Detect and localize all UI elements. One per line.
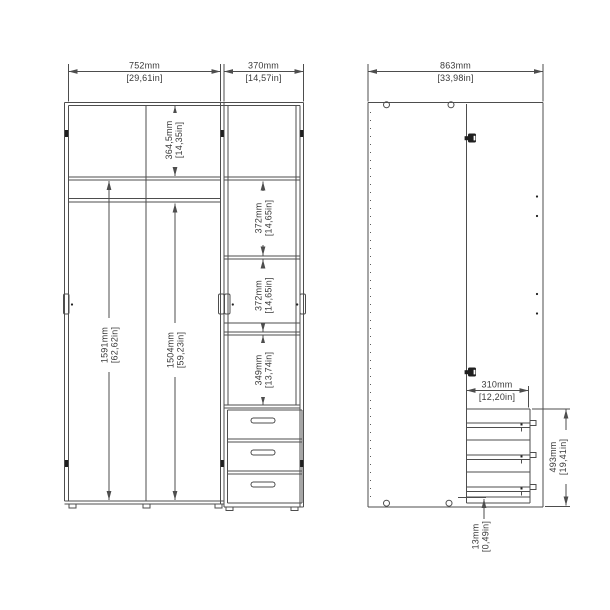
dim-top-compartment: 364,5mm [14,35in] <box>164 106 184 176</box>
handle-pin <box>296 303 298 305</box>
front-view-drawers <box>228 410 303 503</box>
slide-bracket <box>530 485 536 490</box>
drawer-module-detail <box>467 409 537 503</box>
hinge-mark <box>221 460 224 467</box>
dim-base-gap-in: [0,49in] <box>481 521 491 552</box>
slide-bracket <box>530 453 536 458</box>
dim-top-compartment-in: [14,35in] <box>174 122 184 158</box>
dim-drawer-height: 493mm [19,41in] <box>532 409 570 507</box>
dim-shelf-2: 372mm [14,65in] <box>254 260 274 332</box>
hinge-mark <box>300 130 303 137</box>
dim-shelf-2-in: [14,65in] <box>264 277 274 313</box>
door-handle <box>300 294 306 314</box>
drawer-handle <box>251 418 275 423</box>
dim-side-width-in: [33,98in] <box>437 73 473 83</box>
hinge-mark <box>300 460 303 467</box>
screw-mark <box>520 455 522 457</box>
dim-width-right-mm: 370mm <box>248 61 279 71</box>
dim-shelf-1-in: [14,65in] <box>264 200 274 236</box>
dim-interior-left-mm: 1591mm <box>100 327 110 363</box>
dim-drawer-height-mm: 493mm <box>548 441 558 472</box>
technical-drawing-canvas: 752mm [29,61in] 370mm [14,57in] 364,5mm … <box>0 0 610 610</box>
screw-mark <box>520 487 522 489</box>
side-view-fitting-holes <box>384 102 539 506</box>
dim-shelf-3-mm: 349mm <box>254 354 264 385</box>
dim-base-gap: 13mm [0,49in] <box>458 498 491 553</box>
handle-pin <box>71 303 73 305</box>
handle-pin <box>232 303 234 305</box>
dim-drawer-depth-mm: 310mm <box>481 380 512 390</box>
side-view: 863mm [33,98in] 310mm [12,20in] 493mm [1… <box>368 61 570 553</box>
cam-hole <box>384 500 390 506</box>
dim-width-right: 370mm [14,57in] <box>224 61 304 102</box>
side-view-outline <box>368 103 543 508</box>
dim-width-left-mm: 752mm <box>129 61 160 71</box>
dim-width-left-in: [29,61in] <box>126 73 162 83</box>
slide-bracket <box>530 421 536 426</box>
wardrobe-dimension-drawing: 752mm [29,61in] 370mm [14,57in] 364,5mm … <box>0 0 610 610</box>
dim-shelf-3: 349mm [13,74in] <box>254 336 274 405</box>
dowel-mark <box>536 215 538 217</box>
drawer-handle <box>251 450 275 455</box>
dim-interior-rod-in: [59,23in] <box>176 332 186 368</box>
screw-mark <box>520 423 522 425</box>
dim-width-right-in: [14,57in] <box>245 73 281 83</box>
dim-interior-left-in: [62,62in] <box>110 327 120 363</box>
hinge-mark <box>65 460 68 467</box>
door-handle <box>225 294 231 314</box>
dim-top-compartment-mm: 364,5mm <box>164 121 174 160</box>
dim-drawer-height-in: [19,41in] <box>558 439 568 475</box>
hinge-mark <box>65 130 68 137</box>
dim-shelf-1-mm: 372mm <box>254 202 264 233</box>
hinge-mark <box>221 130 224 137</box>
door-handle <box>219 294 225 314</box>
dim-drawer-depth-in: [12,20in] <box>479 392 515 402</box>
dim-side-width: 863mm [33,98in] <box>368 61 543 102</box>
drawer-handle <box>251 482 275 487</box>
dim-shelf-3-in: [13,74in] <box>264 352 274 388</box>
dim-interior-rod: 1504mm [59,23in] <box>166 204 186 501</box>
front-view: 752mm [29,61in] 370mm [14,57in] 364,5mm … <box>64 61 306 511</box>
cam-hole <box>446 500 452 506</box>
dim-drawer-depth: 310mm [12,20in] <box>467 380 529 408</box>
dim-interior-rod-mm: 1504mm <box>166 332 176 368</box>
dowel-mark <box>536 293 538 295</box>
dowel-mark <box>536 312 538 314</box>
dim-side-width-mm: 863mm <box>440 61 471 71</box>
dowel-mark <box>536 195 538 197</box>
dim-width-left: 752mm [29,61in] <box>69 61 221 102</box>
dim-interior-left: 1591mm [62,62in] <box>100 181 120 500</box>
dim-shelf-1: 372mm [14,65in] <box>254 182 274 256</box>
dim-base-gap-mm: 13mm <box>471 524 481 550</box>
dim-shelf-2-mm: 372mm <box>254 280 264 311</box>
